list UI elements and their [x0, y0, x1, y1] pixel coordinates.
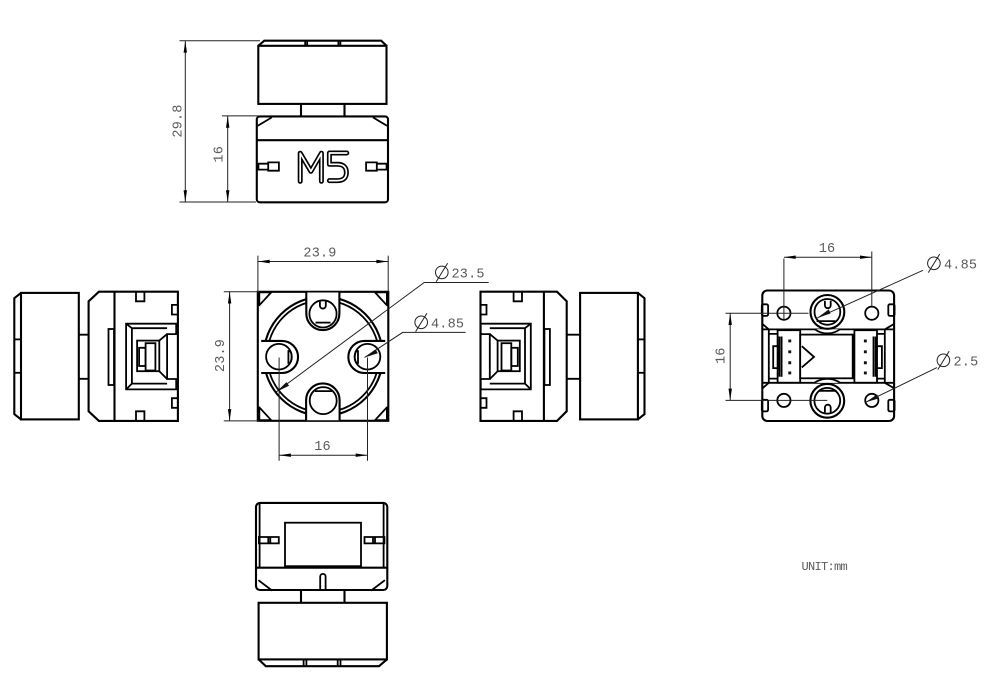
svg-text:29.8: 29.8: [172, 104, 187, 137]
svg-text:16: 16: [212, 146, 227, 163]
svg-text:16: 16: [715, 347, 730, 364]
svg-text:23.9: 23.9: [214, 339, 229, 372]
svg-text:23.5: 23.5: [452, 268, 485, 283]
svg-text:16: 16: [314, 440, 331, 455]
svg-text:16: 16: [819, 242, 836, 257]
svg-text:23.9: 23.9: [303, 247, 336, 262]
svg-text:4.85: 4.85: [944, 258, 977, 273]
svg-text:UNIT:mm: UNIT:mm: [802, 560, 848, 574]
svg-text:4.85: 4.85: [431, 318, 464, 333]
svg-text:2.5: 2.5: [954, 355, 979, 370]
